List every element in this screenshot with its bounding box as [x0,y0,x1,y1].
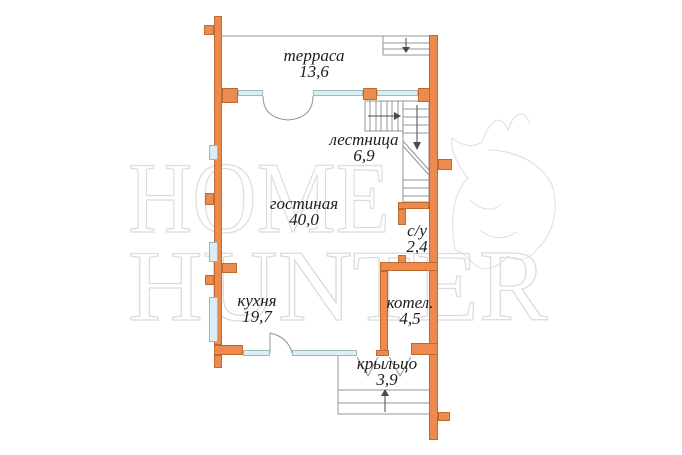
kitchen-door [270,333,292,353]
window-left-2 [209,242,218,262]
room-label-boiler: котел. 4,5 [387,295,434,327]
wall-tick-left-2 [205,275,214,285]
window-terrace-1 [238,90,263,96]
wall-tick-inner-left [222,263,237,273]
room-area: 13,6 [284,64,345,80]
wall-tick-top-left [204,25,214,35]
room-label-stairs: лестница 6,9 [329,132,398,164]
window-kitchen-2 [292,350,357,356]
room-area: 3,9 [357,372,417,388]
window-left-1 [209,145,218,160]
wall-bottom-left-corner [214,345,243,355]
room-area: 19,7 [237,309,276,325]
wall-tick-left-1 [205,193,214,205]
room-label-bathroom: с/у 2,4 [406,223,427,255]
wall-tick-right-1 [438,159,452,170]
room-label-kitchen: кухня 19,7 [237,293,276,325]
wall-left-outer [214,16,222,345]
room-area: 2,4 [406,239,427,255]
room-area: 6,9 [329,148,398,164]
wall-terrace-divider-left [222,88,238,103]
wall-bottom-left-stub [214,355,222,368]
wall-bathroom-left-upper [398,209,406,225]
terrace-french-door [263,96,313,120]
window-terrace-3 [377,90,418,96]
wall-bathroom-boiler-divider [380,262,438,271]
window-terrace-2 [313,90,363,96]
wall-right-outer [429,35,438,440]
wall-tick-right-2 [438,412,450,421]
wall-terrace-divider-pier [363,88,377,100]
room-area: 4,5 [387,311,434,327]
wall-bathroom-top [398,202,429,209]
window-kitchen-1 [243,350,270,356]
room-area: 40,0 [270,212,338,228]
window-left-3 [209,297,218,342]
room-label-living: гостиная 40,0 [270,196,338,228]
room-label-terrace: терраса 13,6 [284,48,345,80]
room-label-porch: крыльцо 3,9 [357,356,417,388]
floor-plan-canvas: HOME HUNTER [0,0,682,455]
terrace-entry-steps [383,36,429,55]
